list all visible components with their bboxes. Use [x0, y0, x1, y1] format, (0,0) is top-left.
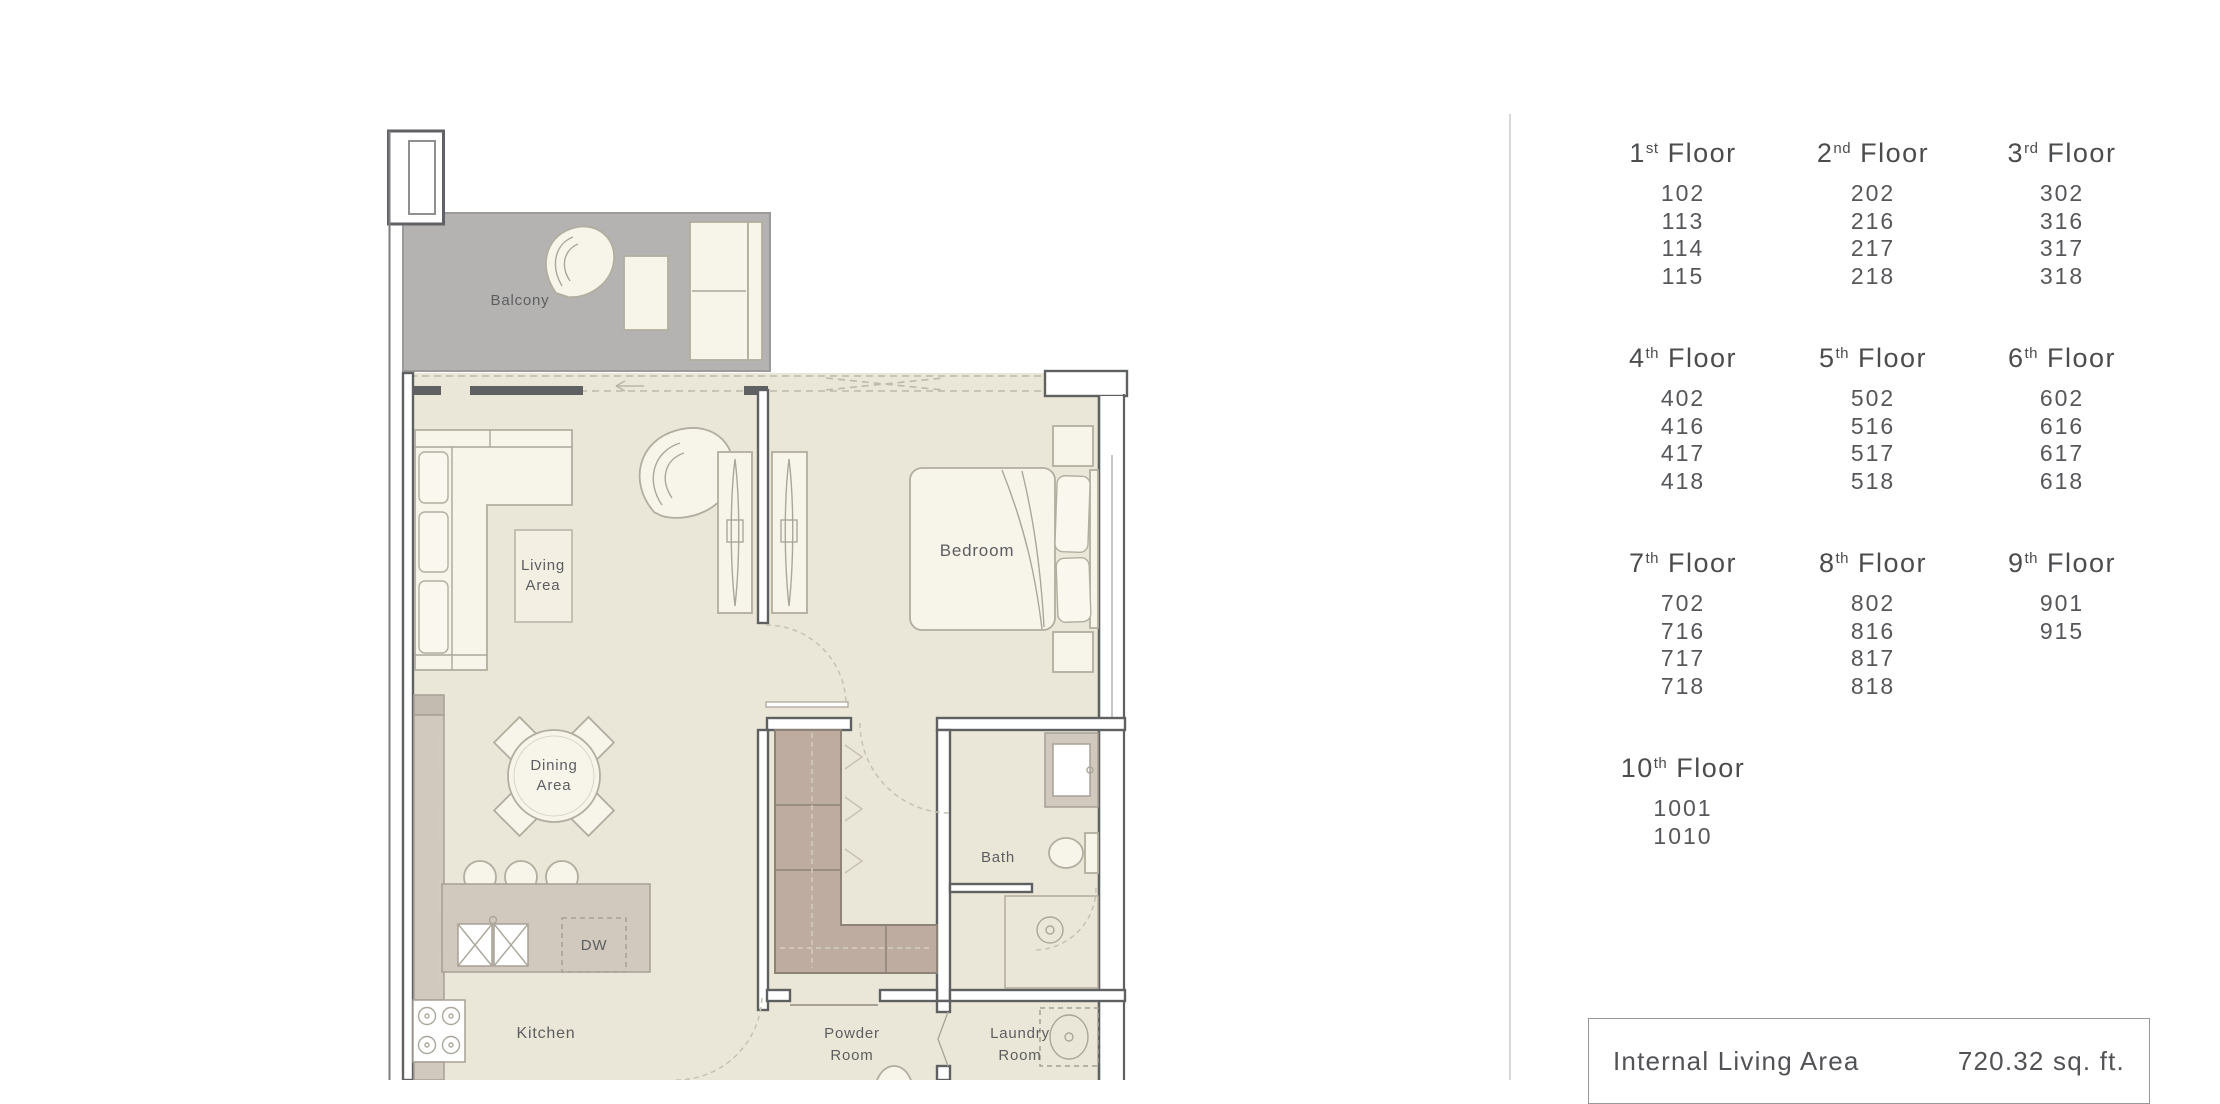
unit-number: 716 [1593, 618, 1773, 646]
floor-header: 1st Floor [1593, 138, 1773, 173]
unit-number: 113 [1593, 208, 1773, 236]
unit-number: 602 [1972, 385, 2152, 413]
unit-number: 418 [1593, 468, 1773, 496]
unit-number: 818 [1783, 673, 1963, 701]
floor-header: 7th Floor [1593, 548, 1773, 583]
unit-number: 114 [1593, 235, 1773, 263]
floor-header: 5th Floor [1783, 343, 1963, 378]
unit-number: 417 [1593, 440, 1773, 468]
floor-block-8th: 8th Floor802816817818 [1783, 548, 1963, 700]
unit-number: 115 [1593, 263, 1773, 291]
floor-header: 9th Floor [1972, 548, 2152, 583]
floor-block-6th: 6th Floor602616617618 [1972, 343, 2152, 495]
internal-living-area-label: Internal Living Area [1613, 1046, 1860, 1077]
floor-header: 3rd Floor [1972, 138, 2152, 173]
floor-header: 8th Floor [1783, 548, 1963, 583]
floor-block-3rd: 3rd Floor302316317318 [1972, 138, 2152, 290]
floors-panel: 1st Floor1021131141152nd Floor2022162172… [0, 0, 2220, 1080]
unit-number: 502 [1783, 385, 1963, 413]
internal-living-area-box: Internal Living Area 720.32 sq. ft. [1588, 1018, 2150, 1104]
unit-number: 617 [1972, 440, 2152, 468]
unit-number: 718 [1593, 673, 1773, 701]
floor-block-7th: 7th Floor702716717718 [1593, 548, 1773, 700]
unit-number: 618 [1972, 468, 2152, 496]
floor-block-4th: 4th Floor402416417418 [1593, 343, 1773, 495]
unit-number: 816 [1783, 618, 1963, 646]
floor-block-9th: 9th Floor901915 [1972, 548, 2152, 645]
floor-block-10th: 10th Floor10011010 [1593, 753, 1773, 850]
floor-header: 4th Floor [1593, 343, 1773, 378]
unit-number: 517 [1783, 440, 1963, 468]
floor-block-2nd: 2nd Floor202216217218 [1783, 138, 1963, 290]
unit-number: 416 [1593, 413, 1773, 441]
unit-number: 102 [1593, 180, 1773, 208]
floor-header: 6th Floor [1972, 343, 2152, 378]
unit-number: 216 [1783, 208, 1963, 236]
floor-block-5th: 5th Floor502516517518 [1783, 343, 1963, 495]
unit-number: 915 [1972, 618, 2152, 646]
floor-header: 2nd Floor [1783, 138, 1963, 173]
unit-number: 218 [1783, 263, 1963, 291]
unit-number: 316 [1972, 208, 2152, 236]
unit-number: 516 [1783, 413, 1963, 441]
floor-block-1st: 1st Floor102113114115 [1593, 138, 1773, 290]
unit-number: 302 [1972, 180, 2152, 208]
unit-number: 702 [1593, 590, 1773, 618]
unit-number: 402 [1593, 385, 1773, 413]
internal-living-area-value: 720.32 sq. ft. [1958, 1046, 2125, 1077]
unit-number: 317 [1972, 235, 2152, 263]
unit-number: 901 [1972, 590, 2152, 618]
unit-number: 202 [1783, 180, 1963, 208]
unit-number: 318 [1972, 263, 2152, 291]
unit-number: 717 [1593, 645, 1773, 673]
unit-number: 217 [1783, 235, 1963, 263]
unit-number: 817 [1783, 645, 1963, 673]
unit-number: 616 [1972, 413, 2152, 441]
unit-number: 802 [1783, 590, 1963, 618]
unit-number: 1010 [1593, 823, 1773, 851]
floor-header: 10th Floor [1593, 753, 1773, 788]
unit-number: 1001 [1593, 795, 1773, 823]
unit-number: 518 [1783, 468, 1963, 496]
